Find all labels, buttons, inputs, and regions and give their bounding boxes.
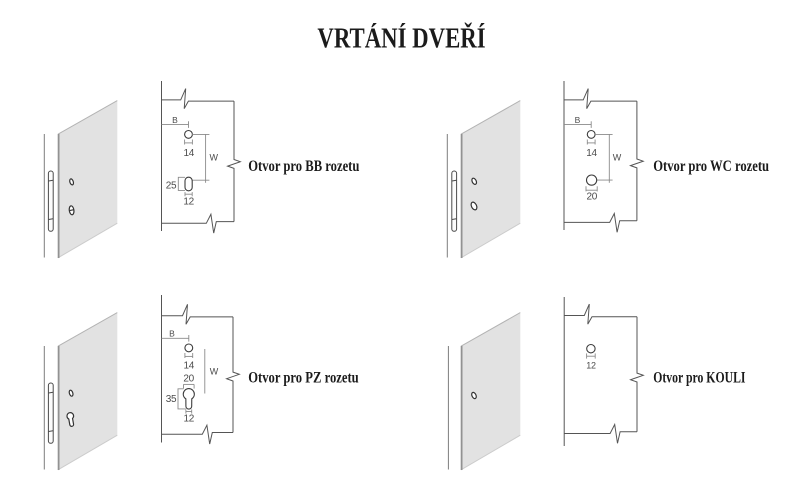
svg-text:Otvor pro KOULI: Otvor pro KOULI: [653, 369, 745, 387]
svg-text:B: B: [172, 115, 178, 125]
svg-text:14: 14: [184, 361, 195, 372]
svg-text:Otvor pro WC rozetu: Otvor pro WC rozetu: [653, 158, 769, 176]
svg-text:W: W: [210, 153, 219, 163]
svg-text:12: 12: [184, 413, 195, 424]
svg-text:20: 20: [587, 191, 598, 202]
svg-text:W: W: [613, 153, 622, 163]
svg-text:20: 20: [183, 373, 194, 384]
svg-text:14: 14: [184, 148, 195, 159]
svg-text:14: 14: [586, 148, 597, 159]
svg-text:B: B: [169, 328, 175, 338]
svg-text:Otvor pro PZ rozetu: Otvor pro PZ rozetu: [248, 369, 359, 387]
svg-text:W: W: [210, 367, 219, 377]
svg-text:Otvor pro BB rozetu: Otvor pro BB rozetu: [248, 158, 359, 176]
svg-text:12: 12: [183, 197, 194, 208]
svg-text:12: 12: [586, 360, 596, 370]
svg-text:VRTÁNÍ DVEŘÍ: VRTÁNÍ DVEŘÍ: [317, 22, 485, 54]
svg-text:25: 25: [166, 181, 177, 192]
svg-text:B: B: [575, 115, 581, 125]
svg-text:35: 35: [166, 394, 177, 405]
